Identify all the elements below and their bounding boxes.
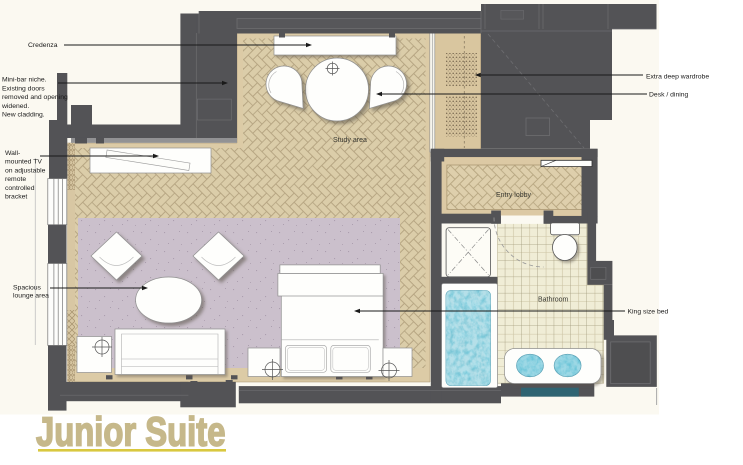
svg-text:Junior Suite: Junior Suite xyxy=(36,408,225,454)
svg-text:widened.: widened. xyxy=(1,103,29,110)
svg-text:New cladding.: New cladding. xyxy=(2,112,45,119)
svg-text:Credenza: Credenza xyxy=(28,42,58,49)
svg-text:Mini-bar niche.: Mini-bar niche. xyxy=(2,77,47,84)
svg-text:Extra deep wardrobe: Extra deep wardrobe xyxy=(646,74,709,81)
svg-text:lounge area: lounge area xyxy=(13,293,49,300)
svg-text:mounted TV: mounted TV xyxy=(5,159,42,166)
svg-text:Existing doors: Existing doors xyxy=(2,85,45,92)
svg-text:bracket: bracket xyxy=(5,194,27,201)
svg-text:controlled: controlled xyxy=(5,185,35,192)
svg-text:Wall-: Wall- xyxy=(5,150,20,157)
svg-text:remote: remote xyxy=(5,176,26,183)
svg-text:Bathroom: Bathroom xyxy=(538,297,569,304)
svg-text:removed and opening: removed and opening xyxy=(2,94,68,101)
svg-text:Study area: Study area xyxy=(333,137,367,144)
svg-text:Desk / dining: Desk / dining xyxy=(649,92,689,99)
svg-text:Spacious: Spacious xyxy=(13,285,42,292)
svg-text:King size bed: King size bed xyxy=(628,309,669,316)
svg-text:on adjustable: on adjustable xyxy=(5,167,46,174)
svg-text:Entry lobby: Entry lobby xyxy=(496,192,532,199)
